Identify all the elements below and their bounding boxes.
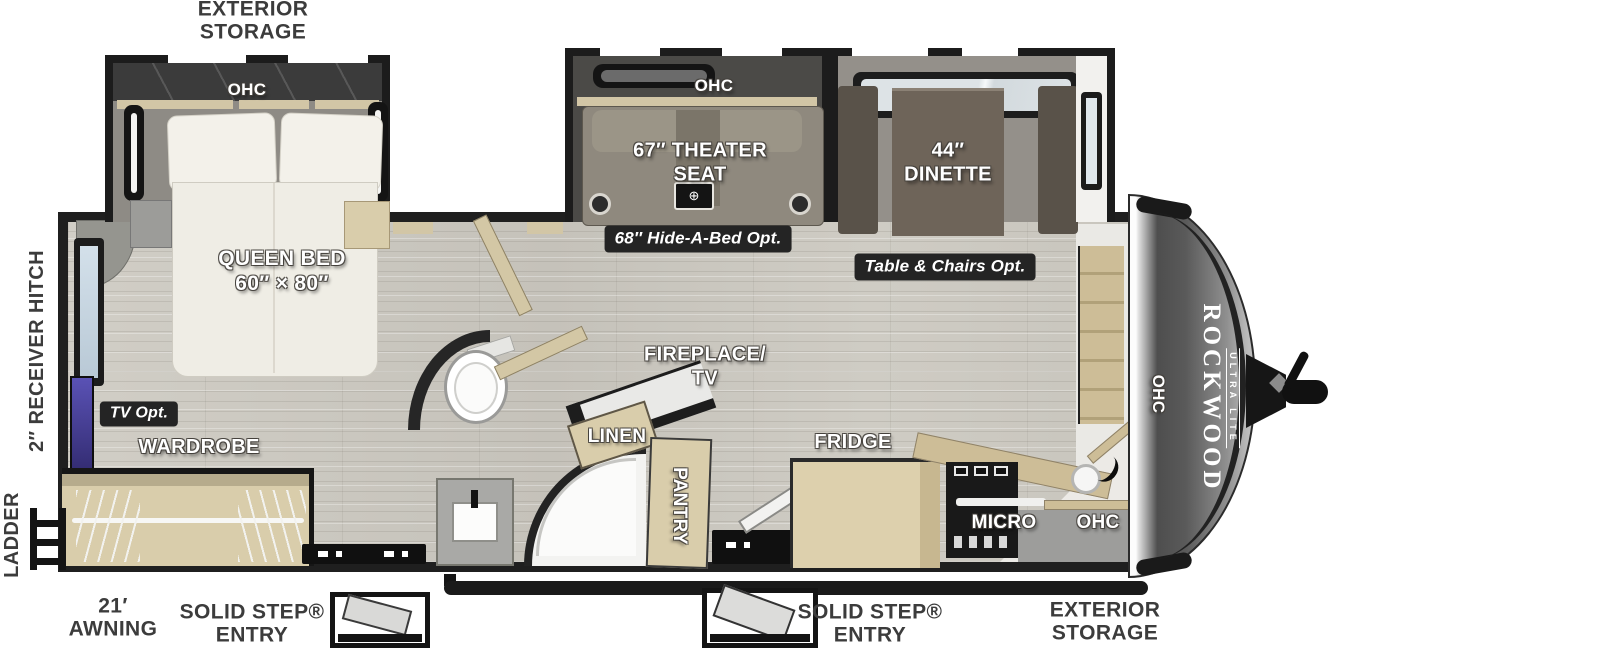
fridge [790,458,940,568]
nightstand-right [344,201,390,249]
label-wardrobe: WARDROBE [138,436,259,460]
stove-burner [954,466,968,476]
dinette-bench [1038,86,1078,234]
label-solid-step-entry-right: SOLID STEP® ENTRY [798,601,943,646]
label-bedroom-ohc: OHC [228,80,267,100]
vanity-sink [452,502,498,542]
label-receiver-hitch: 2″ RECEIVER HITCH [27,250,49,452]
stove-handle-bar [956,498,1046,506]
media-console-icon: ⊕ [689,188,700,204]
wardrobe-hangers-right [238,490,306,562]
theater-shelf [577,97,817,106]
door-jamb [527,222,563,234]
step-tread-dot [384,551,394,557]
badge-table-chairs-option: Table & Chairs Opt. [855,254,1036,281]
label-awning: 21′ AWNING [69,595,158,640]
slide-clearance-light [852,48,928,56]
slide-clearance-light [168,55,246,63]
label-fridge: FRIDGE [814,431,891,455]
label-pantry: PANTRY [668,467,690,545]
nightstand-left [130,200,172,248]
step-tread-dot [318,551,328,557]
rear-window-glass [80,246,98,378]
vanity-faucet [471,490,478,508]
toilet-bowl [454,362,498,414]
fridge-side-face [920,462,940,568]
stove-vents [954,536,1012,548]
door-jamb [393,222,433,234]
rear-ladder [30,508,66,570]
label-fireplace-tv: FIREPLACE/ TV [644,343,766,390]
cupholder [589,193,611,215]
cupholder [789,193,811,215]
slide-clearance-light [600,48,660,56]
label-micro: MICRO [972,512,1037,534]
step-tread-dot [402,551,408,557]
label-queen-bed: QUEEN BED 60″ × 80″ [218,247,346,297]
stove-burner [974,466,988,476]
bedroom-shelf [239,100,309,109]
exterior-step-right-bar [710,634,810,642]
dinette-window-glass [1086,98,1097,184]
dinette-bench [838,86,878,234]
brand-logo: ROCKWOOD [1197,304,1225,493]
label-dinette: 44″ DINETTE [904,139,992,186]
label-solid-step-entry-left: SOLID STEP® ENTRY [180,601,325,646]
brand-sub-logo: ULTRA LITE [1226,348,1240,448]
step-tread-dot [336,551,342,557]
bedroom-window-left-glass [131,113,137,193]
slide-clearance-light [962,48,1018,56]
wardrobe-shelf-shadow [62,474,309,486]
label-kitchen-ohc: OHC [1076,512,1119,534]
exterior-step-left-bar [338,634,422,642]
label-exterior-storage-bottom: EXTERIOR STORAGE [1050,599,1161,644]
floorplan-canvas: ⊕ [0,0,1600,651]
label-linen: LINEN [588,426,647,448]
slide-clearance-light [288,55,368,63]
slide-clearance-light [722,48,782,56]
label-exterior-storage-top: EXTERIOR STORAGE [198,0,309,44]
step-tread-dot [726,542,736,548]
badge-hide-a-bed-option: 68″ Hide-A-Bed Opt. [605,226,792,253]
stove-burner [994,466,1008,476]
label-ladder: LADDER [2,492,24,578]
theater-window-glass [601,70,707,82]
pillow [279,112,384,192]
pillow [167,112,278,192]
kitchen-cabinets [1078,246,1124,424]
label-theater-seat: 67″ THEATER SEAT [633,139,767,186]
step-tread-dot [744,542,750,548]
badge-tv-option: TV Opt. [100,402,178,427]
label-front-ohc: OHC [1148,375,1168,414]
label-theater-ohc: OHC [695,76,734,96]
wardrobe-hangers-left [76,490,140,562]
